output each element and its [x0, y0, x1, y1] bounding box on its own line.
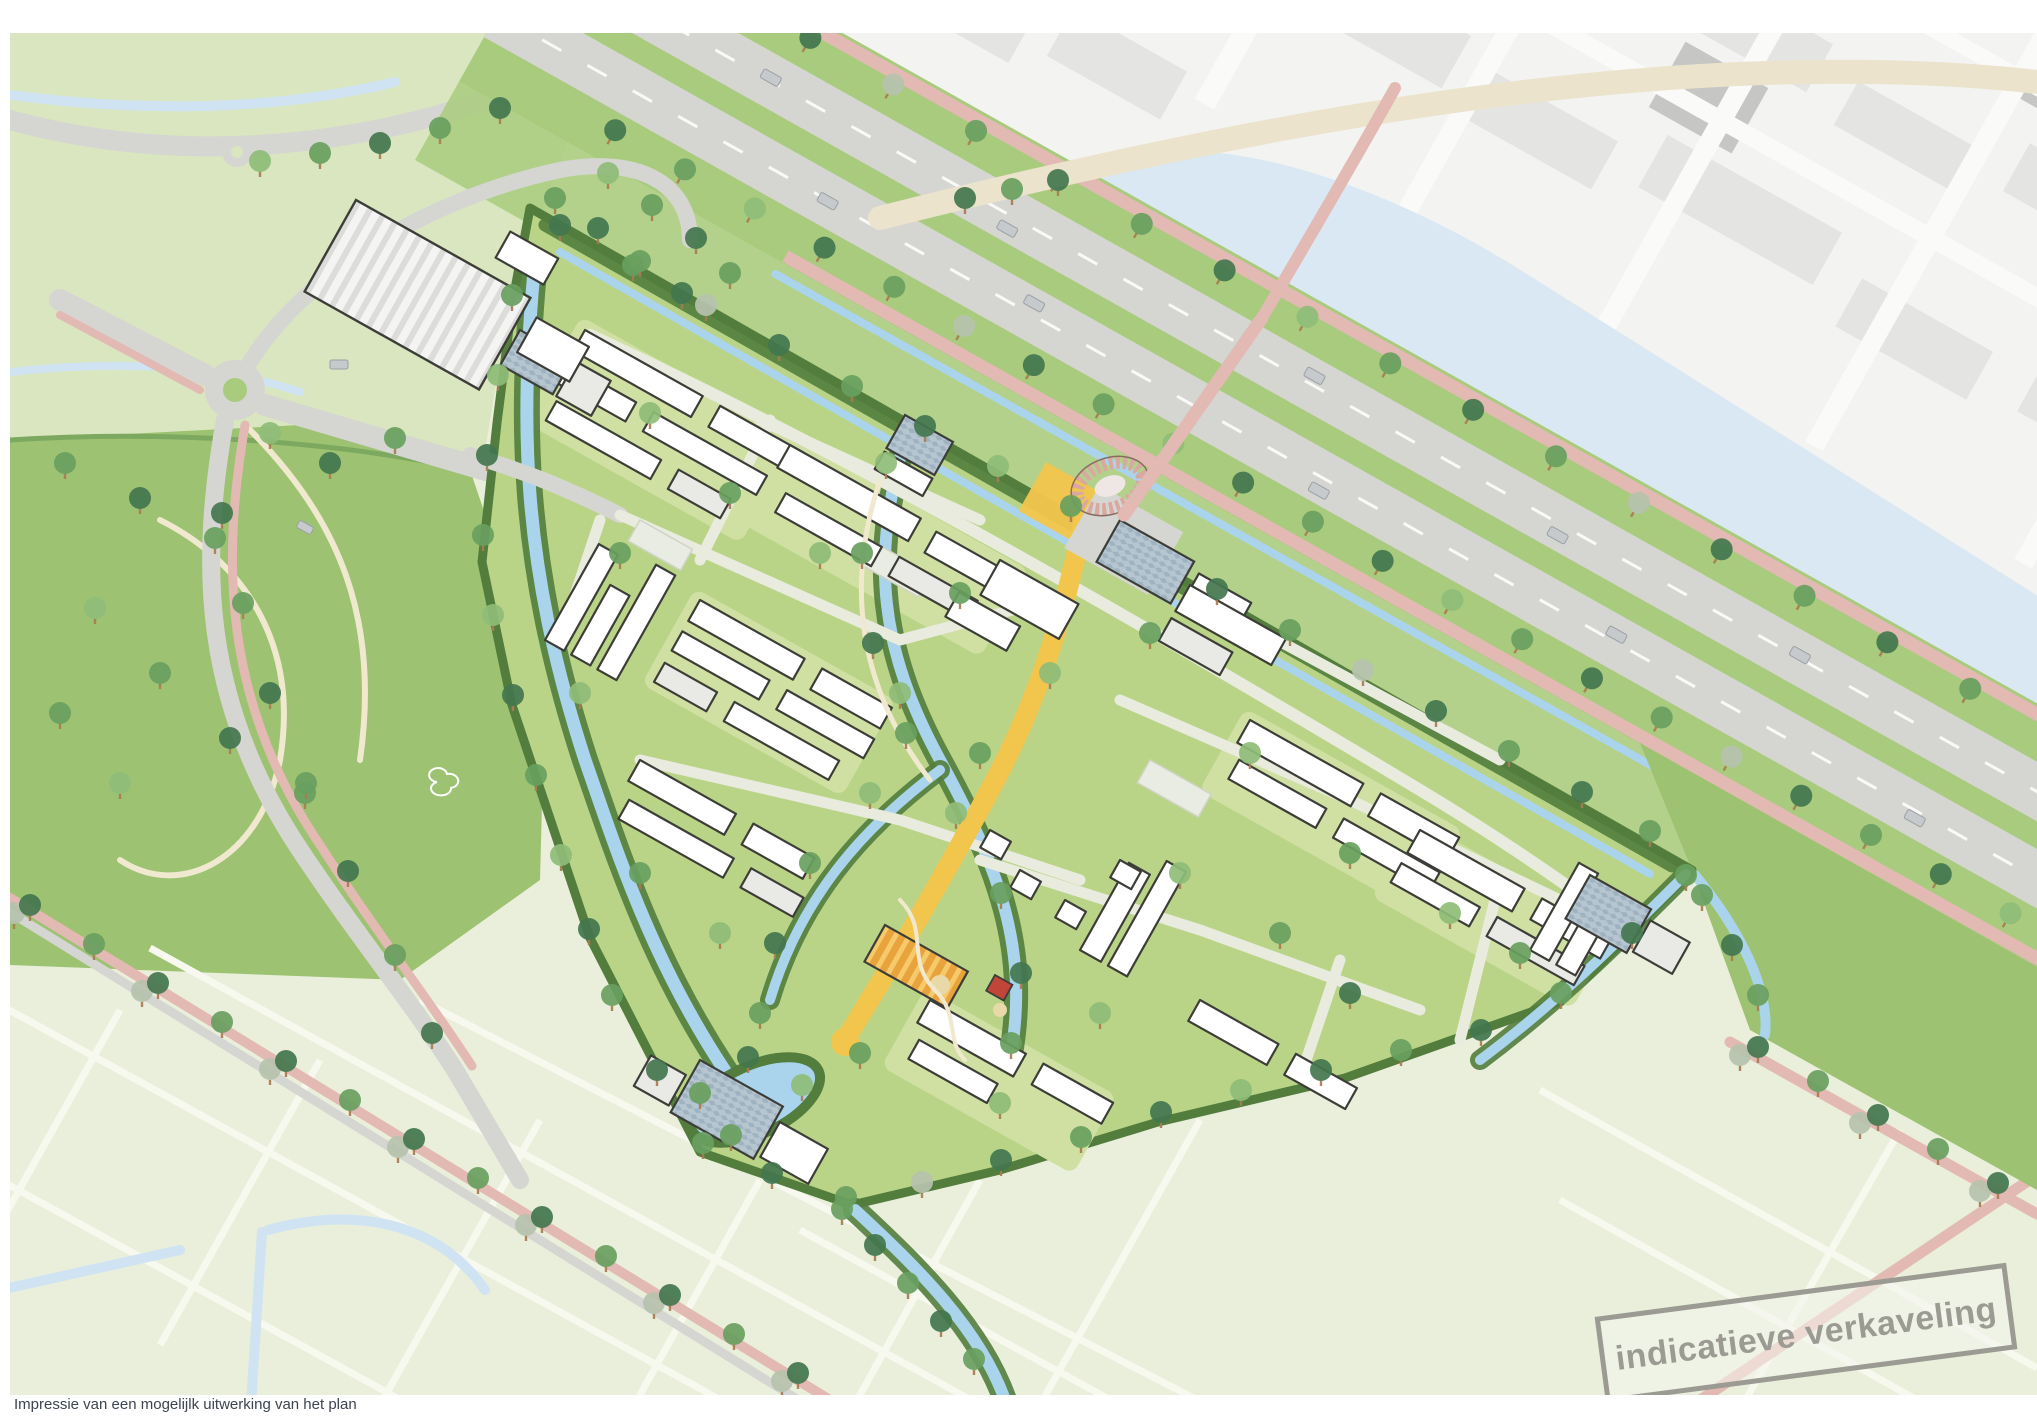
caption: Impressie van een mogelijlk uitwerking v…: [14, 1396, 357, 1413]
masterplan-page: indicatieve verkaveling Impressie van ee…: [0, 0, 2037, 1427]
park-meadow: [10, 425, 545, 980]
masterplan-illustration: indicatieve verkaveling: [0, 0, 2037, 1427]
